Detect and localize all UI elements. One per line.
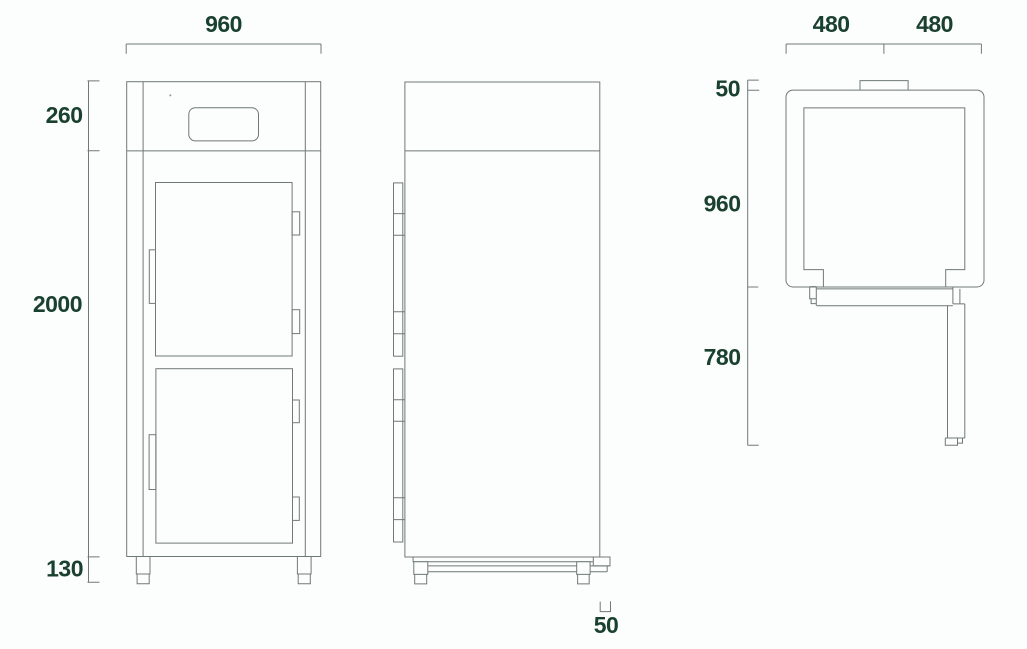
- svg-text:780: 780: [704, 344, 741, 370]
- svg-text:130: 130: [46, 556, 83, 582]
- svg-text:50: 50: [715, 75, 740, 101]
- svg-text:960: 960: [704, 190, 741, 216]
- svg-text:50: 50: [594, 612, 619, 638]
- svg-text:260: 260: [46, 102, 83, 128]
- svg-text:960: 960: [205, 11, 242, 37]
- svg-text:2000: 2000: [33, 291, 82, 317]
- svg-text:480: 480: [916, 11, 953, 37]
- svg-text:480: 480: [813, 11, 850, 37]
